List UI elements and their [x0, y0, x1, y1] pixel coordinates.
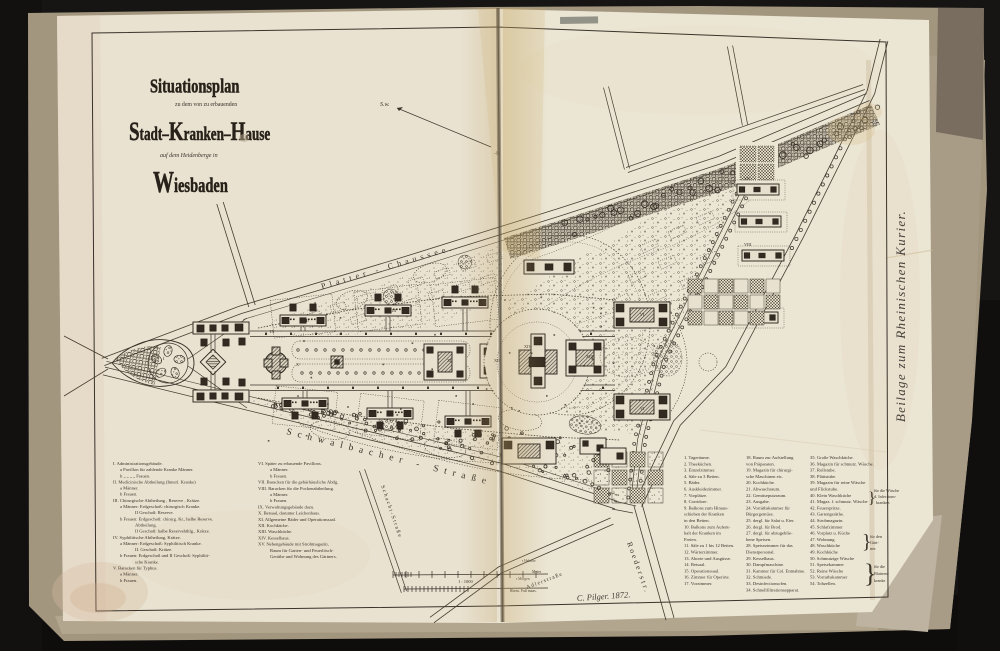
svg-text:Abtheilung.: Abtheilung. — [135, 523, 157, 528]
svg-text:1. Tageräume.: 1. Tageräume. — [684, 455, 710, 460]
svg-text:sche Kranke.: sche Kranke. — [135, 559, 159, 564]
svg-text:10. Balkons zum Aufent-: 10. Balkons zum Aufent- — [684, 524, 731, 529]
svg-text:15. Operationssaal.: 15. Operationssaal. — [684, 568, 719, 573]
svg-text:a Männer.: a Männer. — [270, 467, 288, 472]
svg-text:II. Geschoß: Krätze.: II. Geschoß: Krätze. — [135, 547, 172, 552]
svg-text:auf dem Heidenberge in: auf dem Heidenberge in — [160, 152, 218, 159]
svg-text:48. Waschküche: 48. Waschküche — [810, 543, 840, 548]
svg-text:Blattern-: Blattern- — [874, 571, 889, 576]
svg-text:a Männer.: a Männer. — [270, 492, 288, 497]
svg-text:35. Große Waschküche.: 35. Große Waschküche. — [810, 455, 854, 460]
svg-text:Bürgergemüse.: Bürgergemüse. — [746, 512, 774, 517]
svg-text:43. Gartengeräthe.: 43. Gartengeräthe. — [810, 512, 844, 517]
svg-text:42. Feuerspritze.: 42. Feuerspritze. — [810, 505, 841, 510]
svg-text:VI. Später zu erbauende Pavill: VI. Später zu erbauende Pavillons. — [258, 461, 322, 466]
svg-text:17. Vorzimmer.: 17. Vorzimmer. — [684, 581, 712, 586]
svg-text:b Frauen.: b Frauen. — [120, 578, 137, 583]
svg-text:29. Kesselhaus.: 29. Kesselhaus. — [746, 556, 775, 561]
svg-text:XIV. Kesselhaus.: XIV. Kesselhaus. — [258, 535, 290, 540]
svg-text:VII. Baracken für die gebärhäu: VII. Baracken für die gebärhäusliche Abt… — [258, 480, 339, 485]
svg-text:49. Kochküche: 49. Kochküche — [810, 550, 838, 555]
svg-text:8. Corridore.: 8. Corridore. — [684, 499, 708, 504]
svg-text:und Flickstube.: und Flickstube. — [810, 487, 838, 492]
svg-text:24. Vorräthskammer für: 24. Vorräthskammer für — [746, 505, 790, 510]
svg-text:II. Medicinische Abtheilung (I: II. Medicinische Abtheilung (Innerl. Kra… — [113, 479, 196, 484]
svg-text:XII. Kochküche.: XII. Kochküche. — [258, 523, 289, 528]
svg-text:X: X — [296, 362, 299, 367]
svg-text:VIII: VIII — [744, 242, 752, 247]
svg-text:III: III — [392, 308, 397, 313]
svg-text:44. Strohmagazin.: 44. Strohmagazin. — [810, 518, 844, 523]
svg-text:7. Vorplätze.: 7. Vorplätze. — [684, 493, 707, 498]
svg-text:30. Dampfmaschine.: 30. Dampfmaschine. — [746, 562, 784, 567]
svg-text:a Männer: Erdgeschoß: chirurgi: a Männer: Erdgeschoß: chirurgisch Kranke… — [120, 504, 200, 509]
svg-text:11. Säle zu 1 bis 12 Betten.: 11. Säle zu 1 bis 12 Betten. — [684, 543, 734, 548]
svg-text:Dienstpersonal.: Dienstpersonal. — [746, 550, 775, 555]
svg-text:37. Rollstube.: 37. Rollstube. — [810, 468, 836, 473]
svg-text:a Männer: Erdgeschoß: Syphilit: a Männer: Erdgeschoß: Syphilitisch Krank… — [120, 541, 202, 546]
svg-text:4. Säle zu 3 Betten.: 4. Säle zu 3 Betten. — [684, 474, 720, 479]
svg-text:zu dem von zu erbauenden: zu dem von zu erbauenden — [175, 102, 237, 108]
svg-text:IX. Verwaltungsgebäude dazu.: IX. Verwaltungsgebäude dazu. — [258, 504, 314, 509]
svg-text:51. Speisekammer: 51. Speisekammer — [810, 562, 844, 567]
svg-text:XIII. Waschküche.: XIII. Waschküche. — [258, 529, 292, 534]
svg-text:47. Wohnung: 47. Wohnung — [810, 537, 835, 542]
svg-text:sche Maschinen etc.: sche Maschinen etc. — [746, 474, 783, 479]
svg-text:3. Einzelzimmer.: 3. Einzelzimmer. — [684, 468, 715, 473]
svg-text:VIII. Baracken für die Pockena: VIII. Baracken für die Pockenabtheilung. — [258, 486, 334, 491]
svg-text:21. Abwaschraum.: 21. Abwaschraum. — [746, 487, 780, 492]
svg-text:von Präparaten.: von Präparaten. — [746, 461, 775, 466]
svg-text:5. Bäder.: 5. Bäder. — [684, 480, 700, 485]
svg-text:in den Betten.: in den Betten. — [684, 518, 710, 523]
svg-text:38. Plättstube.: 38. Plättstube. — [810, 474, 836, 479]
svg-text:a Männer.: a Männer. — [120, 486, 138, 491]
svg-text:32. Schmiede.: 32. Schmiede. — [746, 575, 772, 580]
svg-text:50. Schmutzige Wäsche: 50. Schmutzige Wäsche — [810, 556, 854, 561]
svg-text:VI: VI — [640, 312, 645, 317]
svg-text:39. Magazin für reine Wäsche: 39. Magazin für reine Wäsche — [810, 480, 865, 485]
svg-text:a Pavillon für zahlende Kranke: a Pavillon für zahlende Kranke Männer. — [120, 467, 193, 472]
svg-text:2. Theeküchen.: 2. Theeküchen. — [684, 461, 712, 466]
svg-text:53. Vorrathskammer: 53. Vorrathskammer — [810, 575, 848, 580]
svg-text:Gärt-: Gärt- — [870, 540, 879, 545]
svg-text:XI. Allgemeine Bäder und Opera: XI. Allgemeine Bäder und Operationssaal. — [258, 517, 336, 522]
svg-text:Geräthe und Wohnung des Gärtne: Geräthe und Wohnung des Gärtners. — [270, 554, 337, 559]
svg-text:kranken: kranken — [876, 500, 890, 505]
svg-text:19. Magazin für chirurgi-: 19. Magazin für chirurgi- — [746, 468, 793, 473]
svg-text:31. Kammer für Col. Entnahme.: 31. Kammer für Col. Entnahme. — [746, 568, 805, 573]
svg-text:V. Baracken für Typhus.: V. Baracken für Typhus. — [113, 566, 158, 571]
svg-text:20. Kochküche.: 20. Kochküche. — [746, 480, 775, 485]
svg-text:41. Magaz. f. schmutz. Wäsche: 41. Magaz. f. schmutz. Wäsche — [810, 499, 868, 504]
svg-text:26. dergl. für Brod.: 26. dergl. für Brod. — [746, 524, 781, 529]
svg-text:II Geschoß: Reserve.: II Geschoß: Reserve. — [135, 510, 174, 515]
svg-text:Raum für Garten- und Feuerlösc: Raum für Garten- und Feuerlösch- — [270, 548, 334, 553]
svg-text:6. Auskleidezimmer.: 6. Auskleidezimmer. — [684, 487, 722, 492]
svg-text:I. Administrationsgebäude.: I. Administrationsgebäude. — [113, 461, 163, 466]
svg-text:ner.: ner. — [870, 546, 876, 551]
svg-text:d. Infections-: d. Infections- — [874, 494, 897, 499]
svg-text:Freien.: Freien. — [684, 537, 697, 542]
svg-text:34. Schnellfiltrationsapparat.: 34. Schnellfiltrationsapparat. — [746, 587, 799, 592]
svg-text:für die: für die — [874, 564, 885, 569]
svg-text:für den: für den — [870, 534, 883, 539]
svg-text:b Frauen.: b Frauen. — [270, 473, 287, 478]
svg-text:27. dergl. für abzugeblie-: 27. dergl. für abzugeblie- — [746, 531, 793, 536]
svg-text:kranke: kranke — [874, 578, 886, 583]
svg-text:28. Speisezimmer für das: 28. Speisezimmer für das — [746, 543, 793, 548]
svg-text:VI: VI — [640, 406, 645, 411]
svg-text:b Frauen.: b Frauen. — [270, 498, 287, 503]
svg-text:IX: IX — [270, 329, 274, 334]
svg-text:22. Gemüseputzraum.: 22. Gemüseputzraum. — [746, 493, 786, 498]
svg-text:für die Wäsche: für die Wäsche — [874, 488, 899, 493]
svg-text:bene Speisen.: bene Speisen. — [746, 537, 771, 542]
svg-text:23. Ausgabe.: 23. Ausgabe. — [746, 499, 770, 504]
svg-text:14. Betsaal.: 14. Betsaal. — [684, 562, 706, 567]
svg-text:13. Aborte und Ausgüsse.: 13. Aborte und Ausgüsse. — [684, 556, 731, 561]
svg-text:halt der Kranken im: halt der Kranken im — [684, 531, 721, 536]
svg-text:25. dergl. für Salat u. Eier.: 25. dergl. für Salat u. Eier. — [746, 518, 795, 523]
svg-text:52. Reine Wäsche: 52. Reine Wäsche — [810, 568, 843, 573]
svg-text:12. Wärterzimmer.: 12. Wärterzimmer. — [684, 550, 718, 555]
svg-text:XI: XI — [447, 358, 452, 363]
svg-text:schieben der Kranken: schieben der Kranken — [684, 512, 725, 517]
svg-text:33. Desinfectionsofen.: 33. Desinfectionsofen. — [746, 581, 787, 586]
svg-text:b Frauen.: b Frauen. — [120, 492, 137, 497]
svg-text:36. Magazin für schmutz. Wäsch: 36. Magazin für schmutz. Wäsche. — [810, 461, 874, 466]
svg-text:Beilage zum Rheinischen Kurie: Beilage zum Rheinischen Kurier. — [893, 210, 908, 422]
svg-text:S.w.: S.w. — [380, 102, 390, 108]
svg-text:Situationsplan: Situationsplan — [150, 75, 240, 97]
svg-text:18. Raum zur Aufstellung: 18. Raum zur Aufstellung — [746, 455, 794, 460]
svg-text:54. Tobzellen.: 54. Tobzellen. — [810, 581, 836, 586]
svg-text:40. Klein Waschküche: 40. Klein Waschküche — [810, 493, 851, 498]
svg-text:9. Balkons zum Hinaus-: 9. Balkons zum Hinaus- — [684, 505, 729, 510]
svg-text:16. Zimmer für Operirte.: 16. Zimmer für Operirte. — [684, 575, 730, 580]
svg-text:45. Schlafzimmer: 45. Schlafzimmer — [810, 524, 843, 529]
svg-text:VII: VII — [744, 176, 750, 181]
svg-text:a Männer.: a Männer. — [120, 572, 138, 577]
svg-text:46. Vorplatz u. Küche: 46. Vorplatz u. Küche — [810, 531, 850, 536]
svg-text:b Frauen: Erdgeschoß und II Ge: b Frauen: Erdgeschoß und II Geschoß: Syp… — [120, 553, 210, 558]
